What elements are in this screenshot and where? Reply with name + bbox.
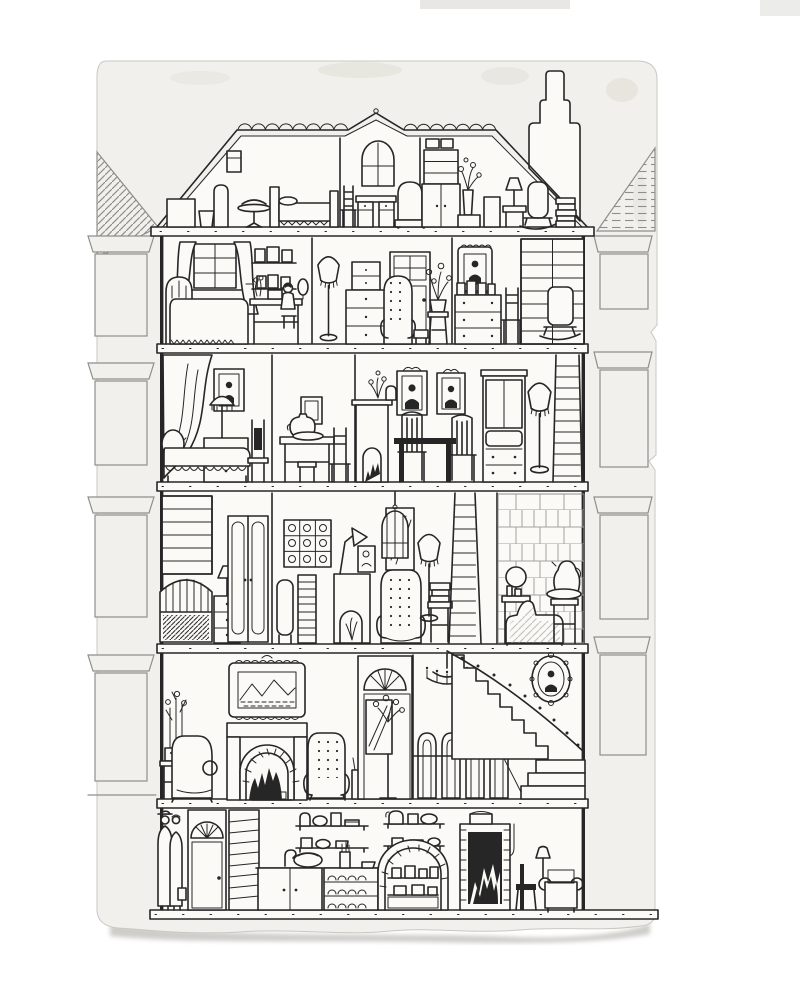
portrait-left: [397, 367, 427, 415]
footstool: [414, 330, 428, 338]
dollhouse-illustration: Dollhouse cross-section — pen and ink il…: [0, 0, 800, 1000]
attic-dotted-armchair: [395, 182, 425, 228]
illustration-figure: Dollhouse cross-section — pen and ink il…: [0, 0, 800, 1000]
utensil-jar: [340, 852, 350, 868]
corner-smudge: [760, 0, 800, 16]
bucket: [199, 211, 214, 227]
tallboy: [346, 262, 386, 344]
framed-landscape: [229, 656, 305, 720]
bookcase: [162, 496, 212, 574]
print-grid: [284, 520, 331, 567]
dotted-armchair: [304, 733, 349, 800]
top-smudge: [420, 0, 570, 9]
tall-mirror: [214, 185, 228, 227]
bookshelf-cupboard: [422, 150, 460, 227]
china-cabinet: [481, 370, 527, 482]
basement-door: [188, 810, 226, 910]
window: [88, 497, 154, 617]
chest-photographs: [455, 281, 501, 344]
pantry-arch: [378, 840, 448, 910]
boxed-stair: [229, 810, 259, 910]
easel-figure: [358, 546, 375, 572]
scan-background: [420, 0, 800, 16]
wing-chair: [381, 276, 415, 344]
window: [594, 236, 652, 309]
hat-box: [426, 139, 439, 148]
window: [88, 655, 154, 781]
book-stack: [556, 198, 576, 227]
hatched-chairback: [277, 580, 293, 643]
tufted-armchair: [377, 570, 425, 643]
basin: [547, 589, 581, 599]
bathroom: [498, 494, 584, 645]
window: [594, 637, 650, 755]
parlour-fireplace: [227, 723, 307, 800]
wicker-hamper: [484, 197, 500, 227]
mortar: [362, 862, 375, 868]
wicker-basket: [167, 199, 195, 227]
portrait-right: [437, 369, 465, 414]
hat-box: [441, 139, 453, 148]
window: [594, 497, 652, 619]
right-neighbor-building: [594, 148, 655, 755]
window: [88, 363, 154, 465]
spindle-settee: [160, 579, 212, 642]
kitchen-range: [460, 812, 514, 911]
left-windows: [88, 236, 154, 781]
wall-box: [227, 151, 241, 172]
scroll-armchair: [172, 736, 217, 802]
display-stove: [334, 574, 370, 643]
range-pot: [470, 814, 492, 824]
oval-mirror: [298, 279, 308, 295]
basin: [293, 432, 323, 440]
window: [88, 236, 154, 336]
wardrobe-doors: [228, 516, 268, 642]
